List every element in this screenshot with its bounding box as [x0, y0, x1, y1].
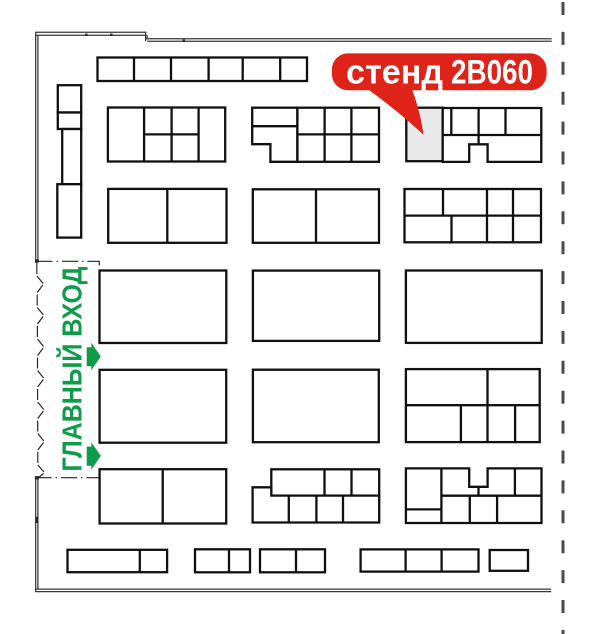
- svg-text:ГЛАВНЫЙ ВХОД: ГЛАВНЫЙ ВХОД: [56, 266, 88, 471]
- svg-text:2В060: 2В060: [451, 54, 533, 92]
- svg-text:стенд: стенд: [346, 54, 443, 92]
